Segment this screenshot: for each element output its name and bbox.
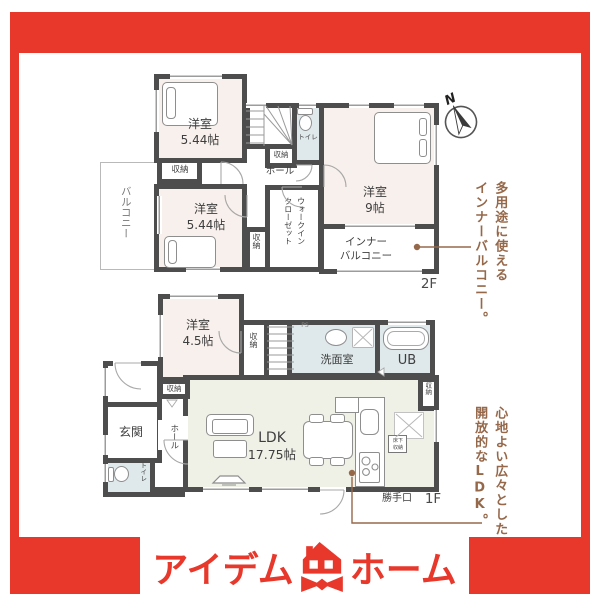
company-logo: アイデム ホーム [138, 538, 471, 596]
stairs-1f-icon [267, 327, 294, 369]
annotation-line: インナーバルコニー。 [469, 181, 489, 333]
stairs-2f-icon [246, 106, 292, 146]
door-arc-symbols [115, 162, 384, 514]
compass-icon: N [433, 86, 481, 142]
annotation-ldk: 心地よい広々とした 開放的なLDK。 [469, 406, 509, 544]
appliance-marks [354, 329, 422, 437]
annotation-line: 多用途に使える [489, 181, 509, 333]
logo-text-left: アイデム [152, 541, 293, 593]
floorplan-flyer: { "colors": { "accent_red": "#e7382b", "… [0, 0, 600, 600]
annotation-line: 開放的なLDK。 [469, 406, 489, 544]
tv-icon [213, 476, 245, 485]
stove-burners-icon [362, 457, 378, 475]
logo-text-right: ホーム [350, 541, 457, 593]
annotation-leader-lines [352, 247, 482, 523]
annotation-inner-balcony: 多用途に使える インナーバルコニー。 [469, 181, 509, 333]
annotation-leader-dots [349, 244, 420, 476]
plan-details-layer: N [0, 0, 600, 600]
compass-north-label: N [443, 91, 459, 109]
annotation-line: 心地よい広々とした [489, 406, 509, 544]
house-icon [297, 541, 347, 593]
